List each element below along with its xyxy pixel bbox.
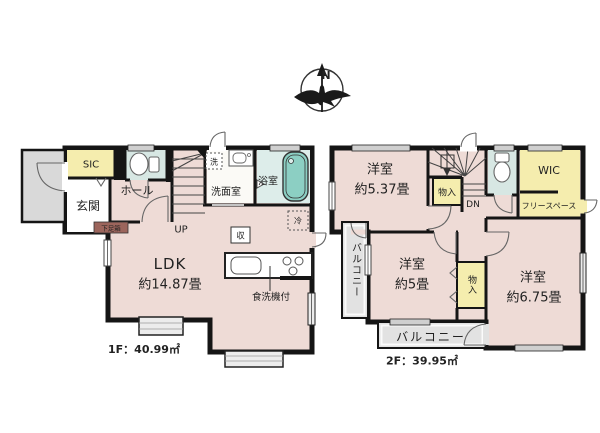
toilet-icon-2f: [494, 153, 510, 182]
window: [352, 145, 410, 151]
label-free-space: フリースペース: [522, 202, 577, 211]
door-gap: [483, 324, 489, 345]
entrance-porch: [22, 150, 65, 222]
label-dishwasher: 食洗機付: [252, 291, 291, 303]
label-area-2f: 2F：39.95㎡: [386, 354, 458, 368]
toilet-bowl: [130, 153, 148, 175]
label-ldk: LDK: [154, 255, 187, 273]
label-bedroom2: 洋室: [399, 257, 425, 273]
counter-wall: [280, 276, 312, 280]
label-entrance: 玄関: [76, 198, 100, 213]
bathtub-icon: [283, 152, 308, 201]
label-fridge: 冷: [294, 216, 302, 226]
stove-burner: [289, 267, 297, 275]
door-gap: [460, 145, 477, 152]
label-closet-mid: 物入: [466, 274, 477, 295]
label-bedroom1: 洋室: [367, 162, 393, 178]
toilet-tank: [149, 157, 159, 172]
label-bedroom3: 洋室: [520, 270, 546, 286]
label-bathroom: 浴室: [258, 175, 278, 188]
door-gap: [308, 232, 316, 248]
floorplan-canvas: N: [0, 0, 600, 433]
stove-burner: [283, 257, 291, 265]
label-balcony-bottom: バルコニー: [396, 330, 466, 344]
window: [528, 145, 562, 151]
label-bedroom3-size: 約6.75畳: [507, 291, 562, 306]
label-bedroom1-size: 約5.37畳: [355, 183, 410, 198]
washstand-basin: [233, 153, 246, 163]
label-storage: 収: [236, 231, 245, 242]
label-area-1f: 1F：40.99㎡: [108, 342, 180, 356]
floor1-plan: SIC 玄関 ホール 下足箱 洗面室 浴室 洗 冷 収 UP LDK 約14.8…: [22, 132, 326, 367]
label-bedroom2-size: 約5畳: [395, 278, 429, 293]
door-gap: [580, 200, 587, 214]
window: [128, 145, 154, 151]
kitchen-sink: [231, 257, 261, 274]
label-closet-upper: 物入: [438, 187, 456, 199]
window: [515, 345, 563, 351]
toilet-tank: [495, 153, 509, 162]
floorplan-page: N: [0, 0, 600, 433]
bay-window: [139, 317, 183, 335]
label-balcony-left: バルコニー: [350, 242, 362, 297]
label-washer: 洗: [210, 157, 218, 167]
floor2-plan: 洋室 約5.37畳 物入 DN WIC フリースペース バルコニー 洋室 約5畳…: [329, 133, 597, 368]
label-shoe-box: 下足箱: [101, 224, 121, 233]
stove-burner: [295, 257, 303, 265]
label-sic: SIC: [83, 160, 99, 171]
bay-window: [225, 351, 283, 367]
window: [270, 145, 300, 151]
label-wic: WIC: [538, 164, 560, 177]
label-stairs-down: DN: [466, 200, 480, 210]
washstand-icon: [229, 150, 253, 166]
label-hall: ホール: [121, 184, 154, 197]
bathtub-drain: [289, 159, 294, 164]
window: [494, 145, 514, 151]
door-gap: [209, 145, 226, 152]
label-stairs-up: UP: [174, 225, 187, 236]
toilet-bowl: [494, 162, 510, 182]
label-washroom: 洗面室: [211, 185, 241, 198]
window: [390, 319, 430, 325]
compass-north-label: N: [321, 69, 330, 82]
door-gap: [62, 162, 68, 192]
label-ldk-size: 約14.87畳: [138, 278, 201, 293]
north-indicator: N: [294, 63, 351, 112]
